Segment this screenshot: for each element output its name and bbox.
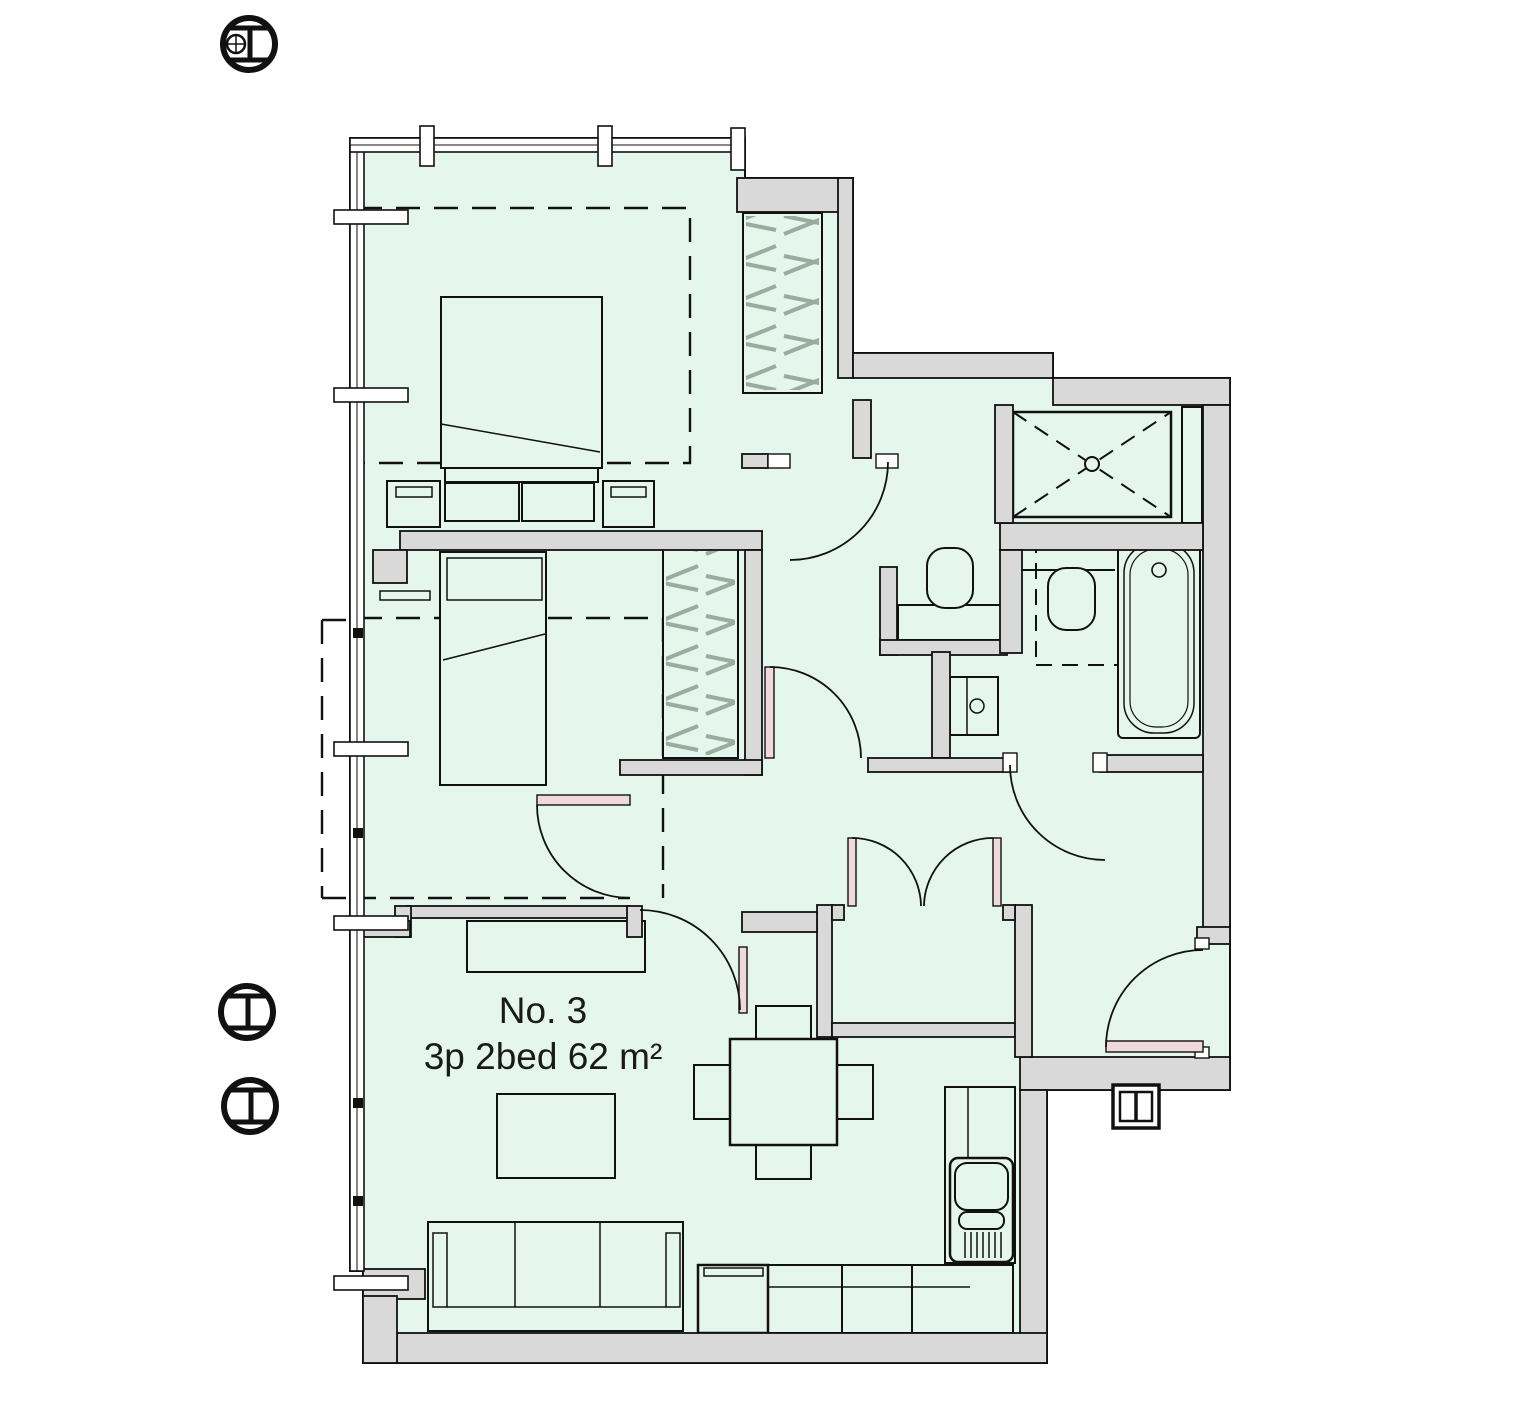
bedroom2-bed [440, 552, 546, 785]
meter-box-icon [1113, 1085, 1159, 1128]
coffee-table [497, 1094, 615, 1178]
unit-spec-label: 3p 2bed 62 m² [424, 1036, 663, 1077]
kitchen-counter-bottom [768, 1265, 1013, 1333]
bathtub [1118, 537, 1200, 738]
duct-panel [1182, 407, 1202, 523]
sideboard [467, 921, 645, 972]
oven [698, 1265, 768, 1333]
column-section-marker-2-icon [221, 986, 273, 1038]
bedroom2-wardrobe [663, 548, 738, 758]
bathroom-cabinet [950, 677, 998, 735]
floor-plan-drawing: No. 3 3p 2bed 62 m² [0, 0, 1535, 1417]
window-wall-top [350, 138, 745, 152]
column-section-marker-3-icon [224, 1080, 276, 1132]
column-section-marker-1-icon [223, 18, 275, 70]
floor-plan-page: No. 3 3p 2bed 62 m² [0, 0, 1535, 1417]
balcony-dashed-outline [322, 620, 352, 898]
dining-table [730, 1039, 837, 1145]
bedroom1-wardrobe [743, 213, 822, 393]
kitchen-sink [950, 1158, 1013, 1262]
shower-tray [1013, 412, 1171, 517]
bedroom1-bed [441, 297, 602, 521]
sofa [428, 1222, 683, 1331]
unit-number-label: No. 3 [499, 990, 587, 1031]
